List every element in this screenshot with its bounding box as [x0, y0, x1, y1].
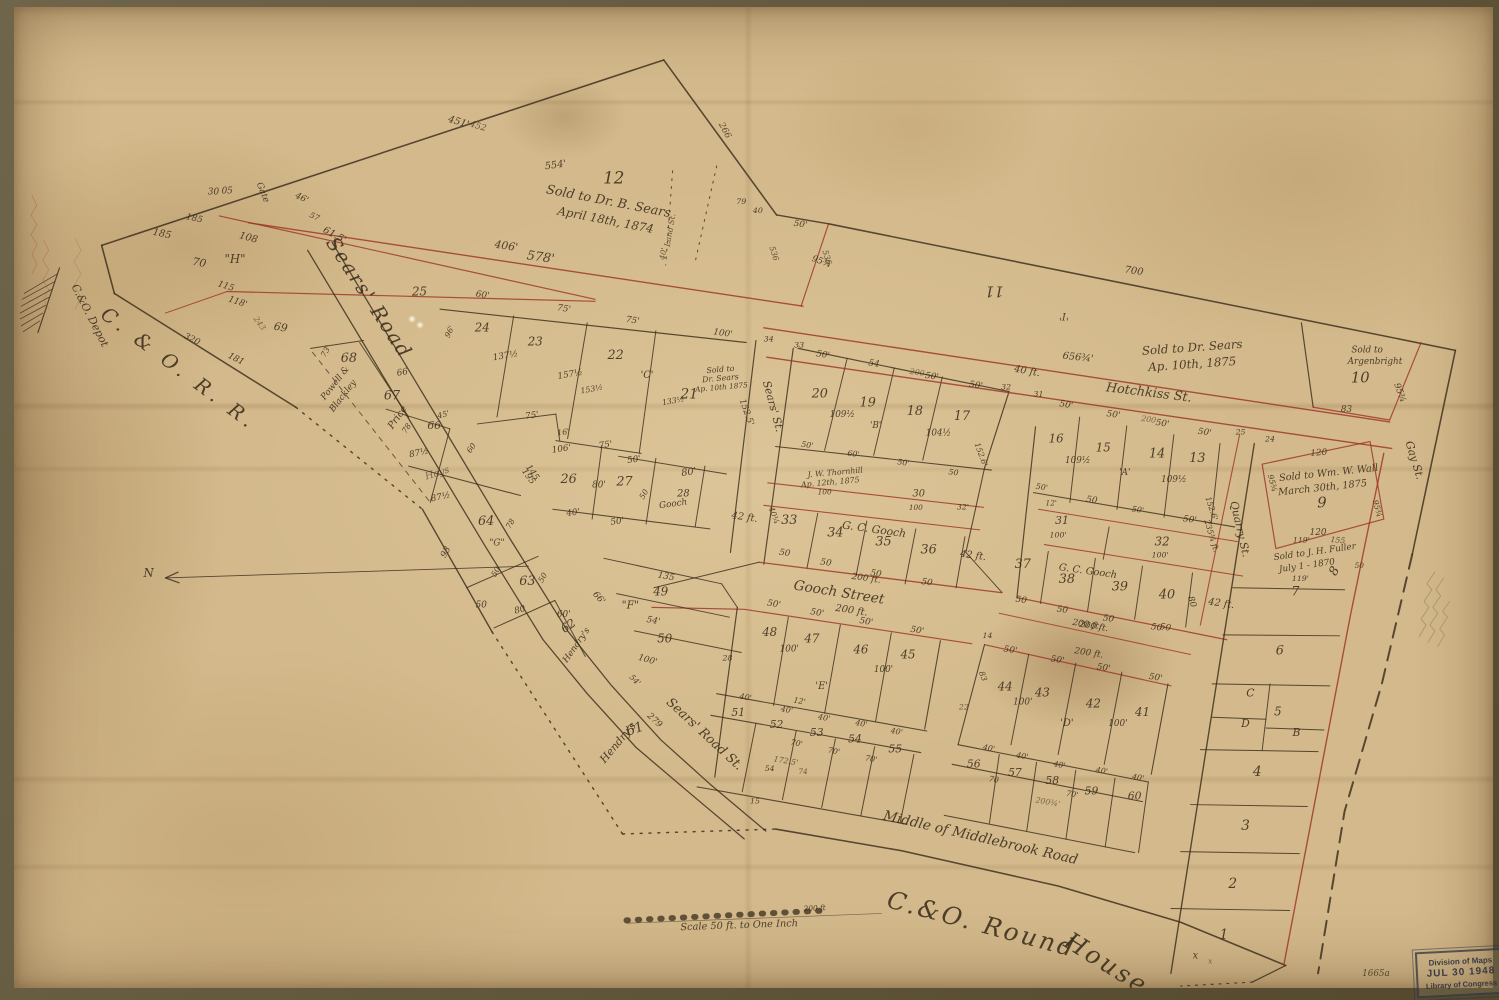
map-label: 119' — [1293, 536, 1310, 545]
lot-49: 49 — [652, 585, 668, 599]
survey-line — [697, 787, 907, 824]
map-label: 34 — [764, 335, 774, 344]
lot-42: 42 — [1085, 696, 1101, 710]
map-label: 50' — [1148, 672, 1163, 684]
map-label: Gate — [254, 181, 271, 204]
map-label: 135 — [657, 571, 676, 584]
map-label: 50' — [910, 625, 925, 637]
map-label: 50' — [1050, 654, 1065, 666]
map-label: 60' — [475, 289, 490, 301]
survey-line — [1105, 778, 1115, 847]
map-label: 50' — [1106, 409, 1121, 421]
map-label: 120 — [1310, 528, 1327, 538]
survey-line — [1058, 663, 1076, 754]
survey-line — [874, 368, 895, 455]
survey-line — [768, 483, 984, 508]
outer-boundary-dotted — [492, 632, 622, 834]
map-label: 14 — [982, 631, 992, 640]
map-label: 54' — [628, 673, 643, 688]
map-label: 'A' — [1119, 468, 1130, 478]
map-label: 104½ — [926, 428, 951, 439]
map-label: 100 — [818, 488, 832, 497]
map-label: 172.5' — [773, 754, 799, 767]
survey-line — [1212, 684, 1330, 686]
lot-24: 24 — [474, 321, 490, 335]
map-label: 70' — [1066, 789, 1080, 800]
map-label: 120 — [1310, 448, 1328, 459]
map-label: 50 — [536, 571, 549, 584]
map-label: 05 — [222, 186, 234, 196]
map-label: 100 — [909, 503, 923, 512]
map-label: 70' — [827, 746, 841, 757]
map-label: "G" — [489, 539, 504, 549]
map-label: 50' — [1182, 514, 1197, 526]
map-label: 80 — [513, 604, 527, 617]
lot-60: 60 — [1128, 790, 1142, 803]
map-label: Hendry's — [596, 719, 639, 766]
lot-12: 12 — [603, 169, 624, 188]
map-label: 40' — [1015, 750, 1029, 761]
map-label: 79 — [736, 197, 746, 206]
survey-line — [776, 446, 992, 470]
survey-line — [807, 513, 818, 568]
lot-56: 56 — [967, 757, 981, 770]
lot-16: 16 — [1049, 432, 1064, 446]
label-40ft-street: 40 ft. — [1012, 364, 1041, 380]
map-label: 54 — [868, 358, 881, 369]
map-label: 133½ — [661, 394, 685, 407]
map-label: 50' — [1155, 418, 1170, 430]
map-label: 106' — [551, 443, 571, 456]
survey-line — [1151, 684, 1168, 774]
survey-line — [742, 723, 756, 792]
map-label: 50' — [810, 607, 825, 619]
label-hotchkiss-st: Hotchkiss St. — [1104, 380, 1192, 406]
map-label: 50' — [897, 457, 910, 468]
lot-40: 40 — [1158, 588, 1175, 603]
lot-64: 64 — [478, 514, 494, 529]
map-label: 109½ — [1065, 455, 1090, 466]
map-label: 30 — [208, 187, 220, 197]
parcel-h: "H" — [224, 252, 245, 266]
map-label: 50 — [476, 600, 488, 610]
map-label: 406' — [493, 238, 519, 254]
map-label: 40' — [779, 704, 793, 715]
outer-boundary-dotted — [296, 407, 423, 509]
lot-33: 33 — [781, 513, 797, 528]
map-label: 152.5' — [737, 398, 756, 427]
map-label: 118' — [227, 295, 248, 310]
survey-line — [1252, 965, 1285, 982]
map-label: 50' — [815, 349, 830, 361]
map-label: 12' — [793, 696, 807, 707]
depot-symbol — [38, 268, 60, 333]
sears-road-west-edge — [308, 250, 745, 839]
map-label: 700 — [1124, 265, 1144, 278]
lot-52: 52 — [770, 718, 784, 731]
map-label: 109½ — [830, 409, 855, 420]
map-label: x — [1193, 951, 1199, 962]
east-column-east-edge — [1284, 453, 1384, 965]
map-label: 157½ — [557, 367, 584, 382]
lot-30: 30 — [913, 489, 925, 500]
map-label: 108 — [238, 230, 259, 245]
map-label: 50 — [638, 488, 651, 501]
map-label: 25 — [1235, 428, 1246, 437]
lot-4: 4 — [1252, 764, 1262, 780]
lot-63: 63 — [519, 574, 535, 589]
map-label: 33 — [794, 340, 804, 349]
map-label: 'C' — [641, 370, 654, 381]
map-label: 50 — [1159, 622, 1172, 634]
map-label: 578' — [526, 248, 556, 267]
survey-line — [989, 755, 999, 824]
illegible-margin-note — [1438, 601, 1450, 646]
lot-25: 25 — [411, 284, 427, 298]
lot-3: 3 — [1241, 818, 1250, 834]
map-label: 54 — [765, 764, 775, 773]
lot-66: 66 — [427, 419, 441, 432]
map-label: 50' — [801, 440, 814, 451]
map-label: 50' — [924, 371, 939, 383]
survey-line — [1191, 805, 1308, 807]
map-label: 80 — [1185, 595, 1198, 609]
label-co-rr: C. & O. R. R. — [96, 302, 261, 435]
lot-58: 58 — [1045, 774, 1059, 787]
survey-line — [639, 331, 656, 454]
map-label: 200¾' — [1034, 795, 1061, 808]
lot-27: 27 — [615, 475, 633, 490]
pencil-accession-number: 1665a — [1362, 969, 1390, 979]
map-label: 50 — [778, 548, 791, 560]
survey-line — [1212, 717, 1266, 719]
margin-ghost-script — [31, 195, 37, 273]
survey-line — [1262, 684, 1270, 751]
lot-26: 26 — [559, 472, 576, 487]
map-label: 536 — [767, 245, 780, 262]
map-label: 96' — [443, 324, 456, 339]
map-label: 40' — [854, 718, 868, 729]
map-label: 50 — [948, 467, 959, 477]
map-label: 100' — [1013, 697, 1032, 707]
survey-line — [923, 377, 943, 460]
map-label: 40' — [1094, 765, 1108, 776]
map-label: 185 — [185, 212, 204, 225]
map-label: 70' — [864, 753, 878, 764]
map-label: 66 — [396, 367, 409, 379]
map-label: 'B' — [870, 421, 881, 431]
map-label: Sold to — [1351, 345, 1382, 355]
lot-39: 39 — [1112, 580, 1128, 595]
lot-48: 48 — [761, 625, 777, 639]
map-label: 31 — [1033, 389, 1043, 398]
lot-9: 9 — [1317, 494, 1326, 511]
lot-b: B — [1292, 726, 1301, 739]
survey-line — [1181, 852, 1300, 854]
map-label: 15 — [750, 797, 760, 806]
lot-6: 6 — [1276, 643, 1284, 658]
map-label: 50' — [1096, 662, 1111, 674]
lot-18: 18 — [907, 404, 923, 419]
map-label: 50 — [1355, 561, 1365, 570]
survey-line — [1066, 770, 1076, 839]
map-label: 656¾' — [1062, 351, 1094, 365]
outer-boundary — [829, 224, 1456, 351]
map-label: 109½ — [1161, 474, 1186, 485]
map-label: 137½ — [492, 348, 519, 363]
map-label: 50' — [969, 380, 984, 392]
depot-symbol — [23, 321, 40, 332]
outer-boundary — [102, 245, 115, 293]
lot-31: 31 — [1055, 514, 1069, 527]
map-label: 100' — [713, 327, 733, 340]
survey-line — [1233, 588, 1345, 590]
map-label: 95¾ — [1391, 381, 1408, 403]
map-label: 32 — [1001, 383, 1011, 392]
lot-45: 45 — [900, 647, 916, 661]
map-label: 50' — [1035, 482, 1048, 493]
illegible-margin-note — [1419, 572, 1435, 637]
survey-line — [956, 537, 965, 588]
depot-symbol — [20, 305, 46, 319]
lot-43: 43 — [1034, 686, 1050, 700]
survey-line — [568, 323, 588, 439]
lot-17: 17 — [954, 409, 971, 424]
survey-line — [1181, 982, 1253, 986]
map-label: 57 — [308, 210, 321, 222]
map-label: 40' — [1130, 772, 1144, 783]
map-label: 100' — [1152, 550, 1169, 559]
lot-59: 59 — [1085, 785, 1099, 798]
map-label: 66' — [590, 590, 607, 607]
map-label: 78 — [504, 517, 517, 530]
lot-53: 53 — [810, 726, 824, 739]
survey-line — [1171, 909, 1290, 911]
survey-line — [695, 166, 717, 262]
map-label: 452 — [467, 119, 487, 134]
map-label: Hays — [423, 464, 451, 482]
map-label: 40' — [1052, 759, 1066, 770]
map-label: 28 — [722, 653, 733, 662]
map-label: 50' — [1059, 399, 1074, 411]
map-label: 50' — [793, 219, 808, 231]
lot-37: 37 — [1015, 557, 1032, 572]
survey-line — [477, 414, 555, 424]
map-label: 54' — [646, 615, 661, 627]
map-label: 87½ — [408, 445, 430, 460]
lot-68: 68 — [341, 351, 357, 366]
lot-57: 57 — [1008, 766, 1022, 779]
map-label: 80' — [681, 466, 698, 479]
survey-line — [1135, 566, 1143, 619]
label-gay-st: Gay St. — [1403, 439, 1427, 481]
map-label: 75' — [557, 303, 572, 315]
lot-14: 14 — [1149, 446, 1165, 461]
map-label: Ap. 10th, 1875 — [1147, 354, 1237, 374]
map-label: 'E' — [815, 681, 828, 692]
survey-line — [409, 466, 521, 495]
outer-boundary-dashed — [1318, 554, 1412, 973]
label-sears-st: Sears' St. — [760, 379, 786, 433]
survey-line — [985, 392, 1010, 469]
map-label: 100' — [874, 665, 893, 675]
map-label: 200 — [1140, 414, 1157, 425]
map-label: 16' — [557, 427, 570, 438]
map-label: 50' — [766, 598, 781, 610]
survey-line — [1223, 635, 1340, 636]
map-label: 185 — [152, 227, 173, 242]
map-label: 74 — [798, 767, 808, 776]
lot-51: 51 — [731, 706, 745, 719]
backing-board: 554'12Sold to Dr. B. SearsApril 18th, 18… — [0, 0, 1499, 1000]
map-sheet: 554'12Sold to Dr. B. SearsApril 18th, 18… — [14, 7, 1493, 988]
lot-67: 67 — [384, 388, 401, 403]
lot-1: 1 — [1220, 927, 1229, 943]
map-label: 95¾ — [1266, 473, 1279, 492]
map-label: 50 — [1015, 595, 1028, 607]
map-label: 40' — [816, 712, 830, 723]
lot-35: 35 — [875, 535, 891, 550]
map-label: 50' — [610, 516, 625, 528]
lot-11: 11 — [985, 283, 1004, 300]
outer-boundary — [664, 60, 777, 215]
hotchkiss-st-north — [764, 328, 1390, 422]
lot-47: 47 — [803, 632, 819, 646]
survey-line — [1301, 323, 1313, 407]
map-label: 243 — [251, 314, 268, 332]
owner-gooch: G. C. Gooch — [841, 518, 907, 540]
map-label: 80' — [592, 481, 606, 491]
lot-55: 55 — [888, 743, 902, 756]
lot-50: 50 — [657, 632, 672, 646]
map-label: 75' — [525, 410, 540, 422]
map-label: Gooch — [659, 497, 688, 511]
map-label: 70 — [191, 255, 207, 270]
map-label: 'I' — [1059, 310, 1068, 321]
survey-line — [999, 613, 1190, 654]
map-label: 50 — [1085, 495, 1098, 507]
map-label: 279 — [644, 711, 664, 731]
survey-line — [165, 291, 227, 313]
map-label: 60 — [465, 441, 478, 454]
map-label: 69 — [273, 320, 289, 335]
map-label: 50' — [1131, 504, 1144, 515]
map-label: 115 — [216, 279, 235, 294]
map-label: x — [1208, 956, 1213, 965]
survey-line — [876, 633, 892, 721]
lot-41: 41 — [1134, 705, 1150, 719]
outer-boundary-dotted — [623, 829, 776, 834]
survey-line — [958, 645, 984, 745]
map-label: 12' — [1046, 498, 1057, 507]
map-label: 40' — [889, 726, 903, 737]
map-label: 50 — [921, 577, 934, 589]
map-label: 32' — [957, 502, 969, 511]
map-label: 42 ft. — [1207, 597, 1236, 612]
lot-d: D — [1240, 717, 1250, 730]
map-label: 45' — [435, 409, 450, 421]
map-label: 200 ft — [802, 903, 826, 913]
lot-5: 5 — [1274, 704, 1282, 718]
survey-line — [1027, 762, 1037, 831]
map-label: 70 — [988, 774, 999, 785]
lot-36: 36 — [920, 542, 936, 557]
survey-line — [722, 584, 738, 608]
lot-32: 32 — [1155, 535, 1170, 549]
lot-44: 44 — [997, 680, 1013, 694]
map-label: 46' — [292, 191, 309, 206]
lot-46: 46 — [852, 642, 868, 656]
map-label: 100' — [1108, 719, 1127, 729]
lot-22: 22 — [607, 348, 624, 363]
map-label: 22 — [958, 702, 969, 711]
lot-2: 2 — [1227, 876, 1237, 892]
map-label: 60' — [847, 449, 860, 460]
map-label: 75' — [625, 315, 640, 327]
map-label: 50' — [1197, 427, 1212, 439]
lot-c: C — [1246, 687, 1255, 700]
label-north: N — [143, 566, 155, 580]
survey-line — [1040, 551, 1048, 603]
map-label: 100' — [780, 645, 799, 655]
map-label: 93 — [439, 545, 453, 560]
survey-line — [925, 641, 941, 729]
lot-54: 54 — [848, 733, 862, 746]
map-label: 200 — [908, 367, 925, 378]
map-label: 40' — [738, 691, 752, 702]
map-label: 40' — [658, 247, 669, 261]
map-label: "F" — [622, 598, 639, 611]
label-co-round-house: C.&O. Round — [884, 885, 1079, 963]
map-label: 83 — [1341, 405, 1353, 415]
map-label: 152.6' — [973, 441, 990, 467]
map-label: 100' — [1050, 531, 1067, 540]
map-label: 70' — [790, 738, 804, 749]
survey-line — [311, 341, 364, 349]
map-label: 40' — [981, 742, 995, 753]
north-arrow-line — [165, 566, 528, 578]
survey-line — [905, 529, 916, 584]
survey-line — [634, 631, 741, 653]
lot-7: 7 — [1291, 585, 1300, 600]
map-label: 50' — [859, 616, 874, 628]
map-label: 50 — [820, 557, 833, 569]
survey-line — [497, 316, 514, 417]
map-label: 40 — [752, 206, 763, 215]
lot-15: 15 — [1096, 440, 1111, 454]
map-label: 75' — [598, 440, 613, 452]
map-label: 100' — [637, 653, 658, 668]
map-label: 42 ft. — [958, 548, 987, 563]
lot-10: 10 — [1351, 370, 1370, 387]
lot-19: 19 — [860, 395, 876, 410]
map-label: 266 — [716, 120, 733, 141]
map-label: 50' — [1003, 645, 1018, 657]
map-label: 40¼ — [766, 505, 781, 526]
label-co-round-house: House — [1058, 925, 1154, 988]
map-label: 200 ft. — [1073, 646, 1105, 661]
map-label: 50 — [1056, 605, 1069, 617]
loc-stamp: Division of Maps JUL 30 1948 Library of … — [1415, 948, 1499, 999]
survey-line — [825, 625, 841, 713]
map-label: 119' — [1292, 574, 1309, 583]
map-label: 83 — [977, 670, 989, 682]
lot-23: 23 — [527, 334, 543, 348]
map-label: 24 — [1264, 435, 1275, 444]
label-quarry-st: Quarry St. — [1227, 500, 1253, 559]
map-label: 'D' — [1060, 718, 1073, 729]
map-label: 40' — [565, 507, 581, 519]
